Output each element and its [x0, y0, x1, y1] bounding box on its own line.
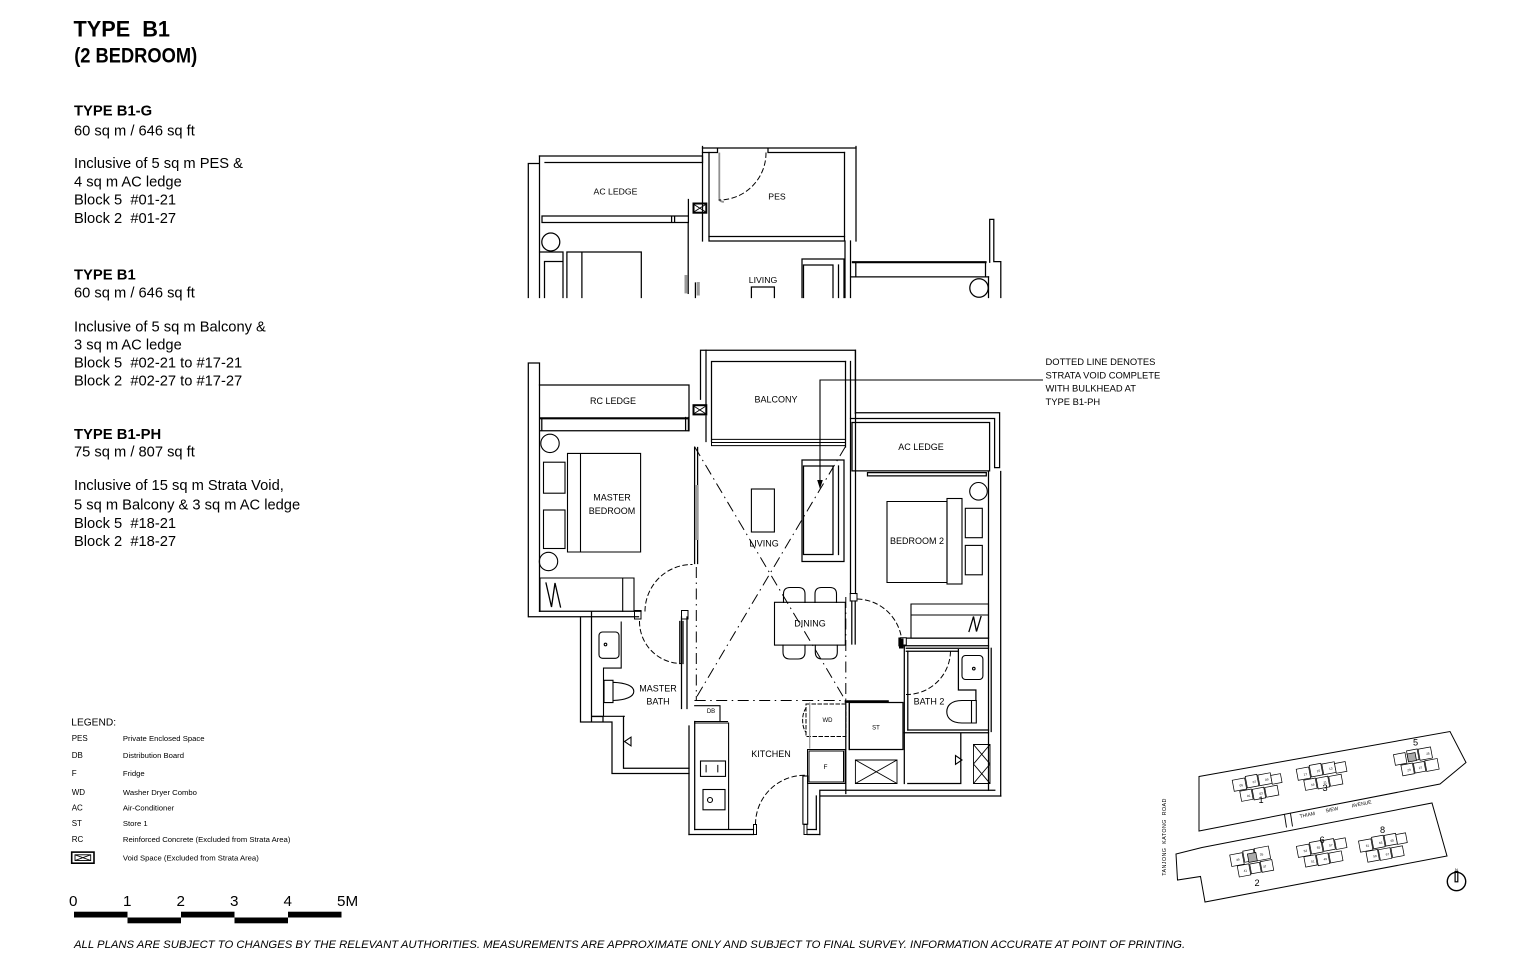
- svg-text:2: 2: [177, 893, 185, 910]
- svg-text:Store 1: Store 1: [123, 819, 148, 828]
- svg-text:WD: WD: [823, 718, 834, 724]
- svg-text:Block 2 #02-27 to #17-27: Block 2 #02-27 to #17-27: [74, 374, 242, 390]
- svg-text:4: 4: [284, 893, 292, 910]
- svg-text:RC: RC: [72, 835, 84, 844]
- svg-text:TYPE B1: TYPE B1: [74, 17, 171, 42]
- svg-text:F: F: [824, 764, 828, 771]
- svg-text:Reinforced Concrete (Excluded: Reinforced Concrete (Excluded from Strat…: [123, 835, 291, 844]
- svg-text:5: 5: [1413, 738, 1418, 748]
- svg-text:60 sq m / 646 sq ft: 60 sq m / 646 sq ft: [74, 124, 195, 140]
- svg-text:AC LEDGE: AC LEDGE: [594, 187, 638, 197]
- svg-text:WD: WD: [72, 788, 86, 797]
- svg-text:Air-Conditioner: Air-Conditioner: [123, 804, 175, 813]
- svg-text:0: 0: [69, 893, 77, 910]
- svg-text:Block 5 #02-21 to #17-21: Block 5 #02-21 to #17-21: [74, 356, 242, 372]
- svg-text:TYPE B1-PH: TYPE B1-PH: [74, 427, 161, 443]
- svg-text:Inclusive of 5 sq m PES &: Inclusive of 5 sq m PES &: [74, 156, 243, 172]
- svg-text:Block 5 #18-21: Block 5 #18-21: [74, 516, 176, 532]
- svg-text:Private Enclosed Space: Private Enclosed Space: [123, 734, 205, 743]
- svg-text:Block 2 #01-27: Block 2 #01-27: [74, 211, 176, 227]
- svg-text:Void Space (Excluded from Stra: Void Space (Excluded from Strata Area): [123, 854, 259, 863]
- svg-text:1: 1: [123, 893, 131, 910]
- svg-text:ST: ST: [72, 819, 82, 828]
- svg-text:Washer Dryer Combo: Washer Dryer Combo: [123, 788, 197, 797]
- svg-text:LEGEND:: LEGEND:: [71, 717, 116, 728]
- svg-text:ST: ST: [872, 726, 880, 732]
- svg-text:N: N: [1455, 867, 1458, 872]
- svg-text:6: 6: [1319, 835, 1324, 845]
- svg-text:TYPE B1-PH: TYPE B1-PH: [1046, 396, 1101, 407]
- svg-text:PES: PES: [72, 734, 88, 743]
- svg-text:Block 5 #01-21: Block 5 #01-21: [74, 193, 176, 209]
- svg-text:LIVING: LIVING: [749, 275, 778, 285]
- svg-text:AC: AC: [72, 804, 83, 813]
- svg-text:ALL PLANS ARE SUBJECT TO CHANG: ALL PLANS ARE SUBJECT TO CHANGES BY THE …: [73, 939, 1185, 951]
- svg-text:2: 2: [1254, 878, 1259, 888]
- svg-text:1: 1: [1258, 795, 1263, 805]
- svg-text:DB: DB: [72, 751, 83, 760]
- svg-text:3: 3: [230, 893, 238, 910]
- svg-text:TANJONG KATONG ROAD: TANJONG KATONG ROAD: [1162, 798, 1168, 876]
- svg-text:DB: DB: [707, 709, 715, 715]
- svg-text:3 sq m AC ledge: 3 sq m AC ledge: [74, 338, 182, 354]
- svg-text:PES: PES: [768, 192, 786, 202]
- svg-text:Distribution Board: Distribution Board: [123, 751, 184, 760]
- svg-text:THIAM: THIAM: [1299, 811, 1315, 820]
- svg-text:DOTTED LINE DENOTES: DOTTED LINE DENOTES: [1046, 356, 1156, 367]
- svg-text:Block 2 #18-27: Block 2 #18-27: [74, 534, 176, 550]
- svg-text:60 sq m / 646 sq ft: 60 sq m / 646 sq ft: [74, 286, 195, 302]
- svg-text:75 sq m / 807 sq ft: 75 sq m / 807 sq ft: [74, 445, 195, 461]
- svg-text:WITH BULKHEAD AT: WITH BULKHEAD AT: [1046, 383, 1137, 394]
- svg-text:TYPE B1: TYPE B1: [74, 268, 136, 284]
- svg-text:(2 BEDROOM): (2 BEDROOM): [74, 45, 197, 68]
- svg-text:Inclusive of 15 sq m Strata Vo: Inclusive of 15 sq m Strata Void,: [74, 478, 284, 494]
- svg-text:MASTER: MASTER: [593, 493, 631, 503]
- svg-text:DINING: DINING: [794, 619, 826, 629]
- svg-text:BEDROOM: BEDROOM: [589, 506, 636, 516]
- svg-text:BALCONY: BALCONY: [754, 395, 797, 405]
- svg-text:F: F: [72, 769, 77, 778]
- svg-text:Inclusive of 5 sq m Balcony &: Inclusive of 5 sq m Balcony &: [74, 320, 266, 336]
- svg-text:BATH: BATH: [646, 697, 669, 707]
- svg-text:MASTER: MASTER: [639, 684, 677, 694]
- svg-text:8: 8: [1380, 825, 1385, 835]
- svg-text:5 sq m Balcony & 3 sq m AC led: 5 sq m Balcony & 3 sq m AC ledge: [74, 498, 300, 514]
- svg-text:Fridge: Fridge: [123, 769, 145, 778]
- svg-text:LIVING: LIVING: [749, 539, 779, 549]
- svg-text:AC LEDGE: AC LEDGE: [898, 442, 944, 452]
- svg-text:KITCHEN: KITCHEN: [751, 749, 791, 759]
- svg-text:4 sq m AC ledge: 4 sq m AC ledge: [74, 174, 182, 190]
- svg-text:STRATA VOID COMPLETE: STRATA VOID COMPLETE: [1046, 369, 1161, 380]
- svg-text:BEDROOM 2: BEDROOM 2: [890, 536, 944, 546]
- svg-text:SIEW: SIEW: [1325, 806, 1339, 814]
- svg-text:3: 3: [1322, 783, 1327, 793]
- svg-text:RC LEDGE: RC LEDGE: [590, 396, 636, 406]
- svg-text:5M: 5M: [337, 893, 358, 910]
- svg-text:BATH 2: BATH 2: [914, 697, 945, 707]
- svg-text:TYPE B1-G: TYPE B1-G: [74, 104, 152, 120]
